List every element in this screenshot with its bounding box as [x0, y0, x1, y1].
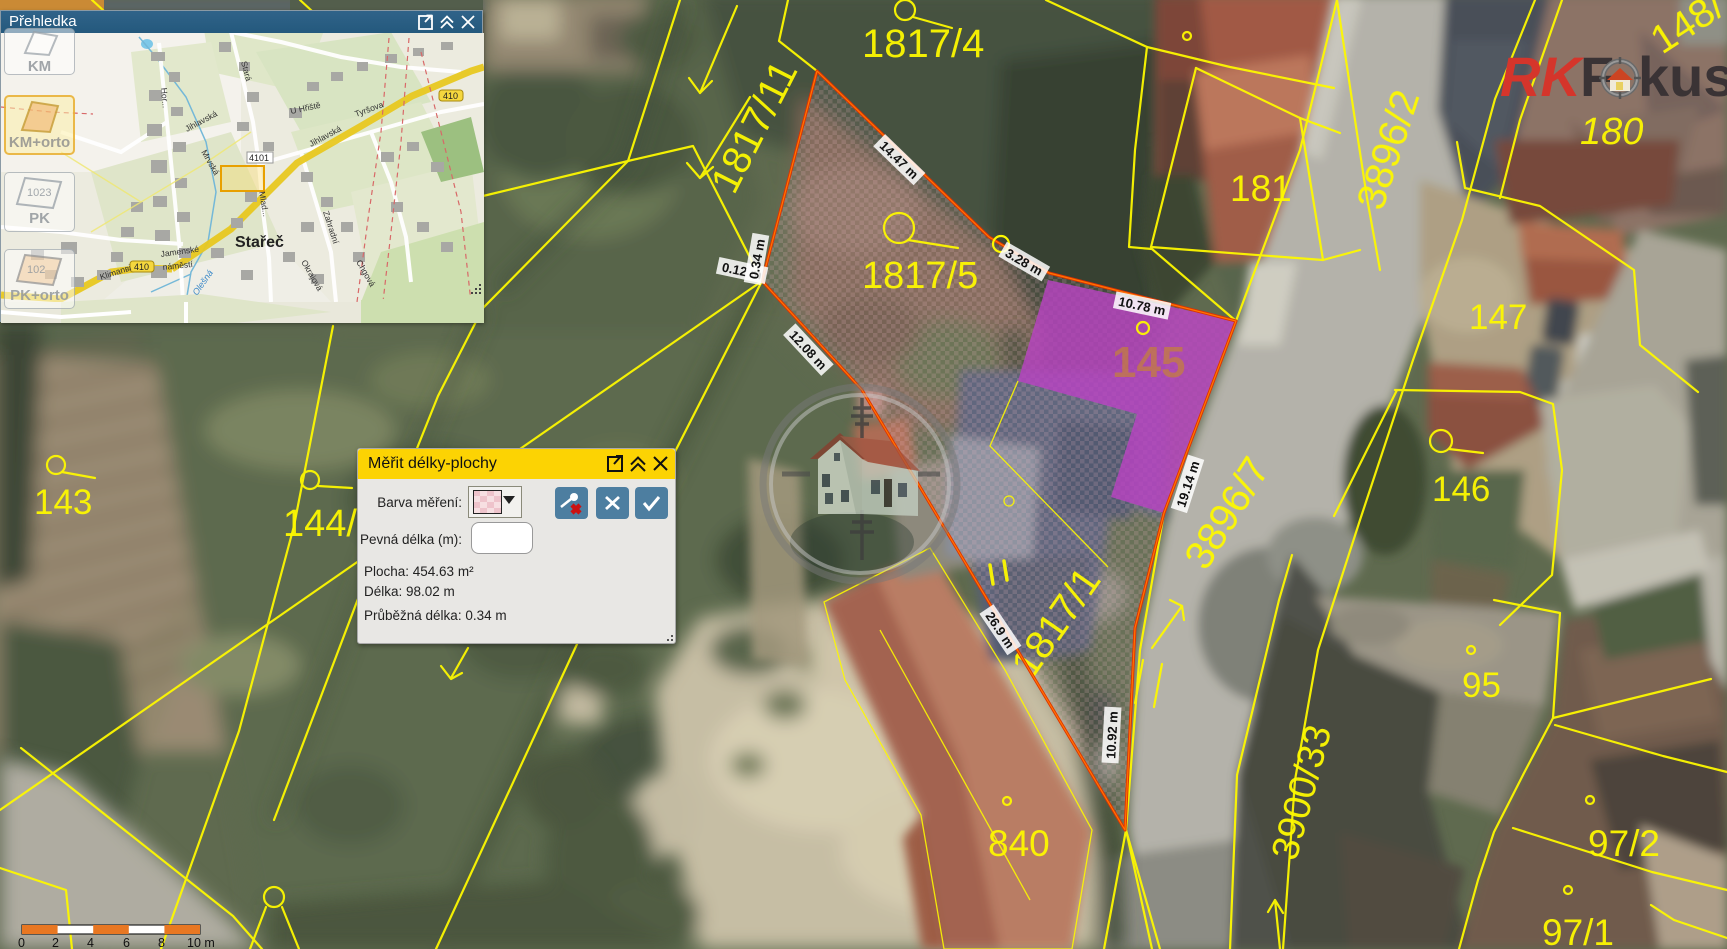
svg-text:95: 95 [1462, 666, 1501, 705]
svg-text:180: 180 [1580, 111, 1643, 153]
svg-text:840: 840 [988, 823, 1050, 864]
svg-text:97/2: 97/2 [1588, 823, 1660, 864]
svg-text:410: 410 [443, 91, 458, 101]
svg-text:1817/4: 1817/4 [862, 22, 984, 66]
svg-text:145: 145 [1112, 338, 1185, 387]
svg-text:146: 146 [1432, 470, 1490, 509]
svg-text:1817/5: 1817/5 [862, 255, 978, 297]
svg-text:10.92 m: 10.92 m [1103, 711, 1120, 759]
svg-text:4101: 4101 [249, 153, 269, 163]
svg-text:F: F [1580, 45, 1614, 108]
svg-text:147: 147 [1469, 298, 1527, 337]
svg-text:4: 4 [87, 936, 94, 949]
svg-text:97/1: 97/1 [1542, 912, 1614, 949]
svg-text:0: 0 [18, 936, 25, 949]
svg-text:143: 143 [34, 483, 92, 522]
svg-text:1023: 1023 [27, 187, 51, 199]
svg-text:102: 102 [27, 264, 45, 276]
svg-text:6: 6 [123, 936, 130, 949]
svg-text:Hor...: Hor... [159, 87, 171, 108]
svg-text:8: 8 [158, 936, 165, 949]
svg-text:2: 2 [52, 936, 59, 949]
svg-text:RK: RK [1500, 45, 1584, 108]
svg-text:181: 181 [1230, 168, 1292, 209]
svg-text:10 m: 10 m [187, 936, 215, 949]
svg-text:410: 410 [134, 262, 149, 272]
svg-text:Stařeč: Stařeč [235, 234, 284, 251]
svg-text:kus: kus [1638, 45, 1727, 108]
